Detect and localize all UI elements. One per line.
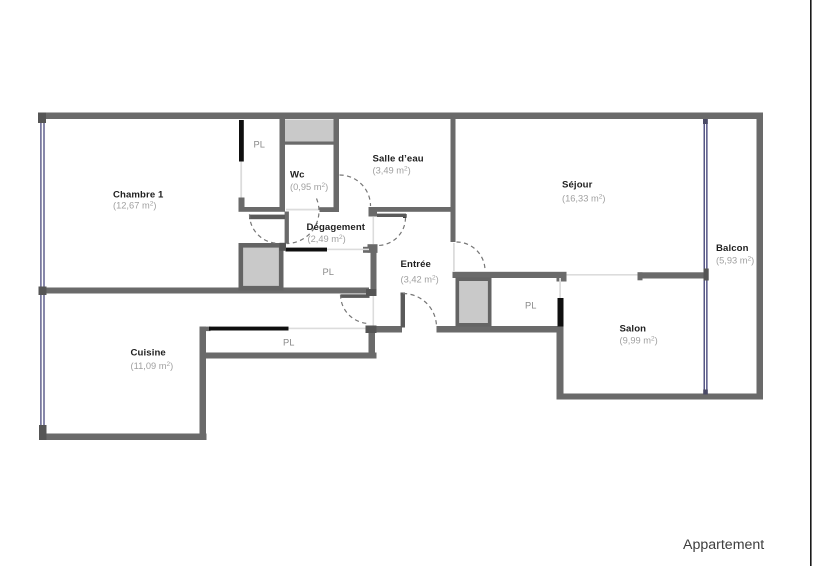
svg-text:Wc: Wc (290, 170, 305, 181)
svg-text:Dégagement: Dégagement (307, 222, 366, 233)
svg-text:PL: PL (283, 338, 294, 348)
svg-text:Séjour: Séjour (562, 180, 593, 191)
svg-text:PL: PL (323, 267, 334, 277)
svg-text:PL: PL (525, 301, 536, 311)
svg-text:Cuisine: Cuisine (131, 348, 166, 359)
svg-text:Appartement: Appartement (683, 537, 764, 553)
svg-text:Salon: Salon (620, 324, 647, 335)
svg-text:Salle d’eau: Salle d’eau (373, 154, 424, 165)
svg-text:Chambre 1: Chambre 1 (113, 190, 164, 201)
svg-text:Entrée: Entrée (401, 259, 431, 270)
svg-text:Balcon: Balcon (716, 243, 749, 254)
svg-text:PL: PL (254, 140, 265, 150)
